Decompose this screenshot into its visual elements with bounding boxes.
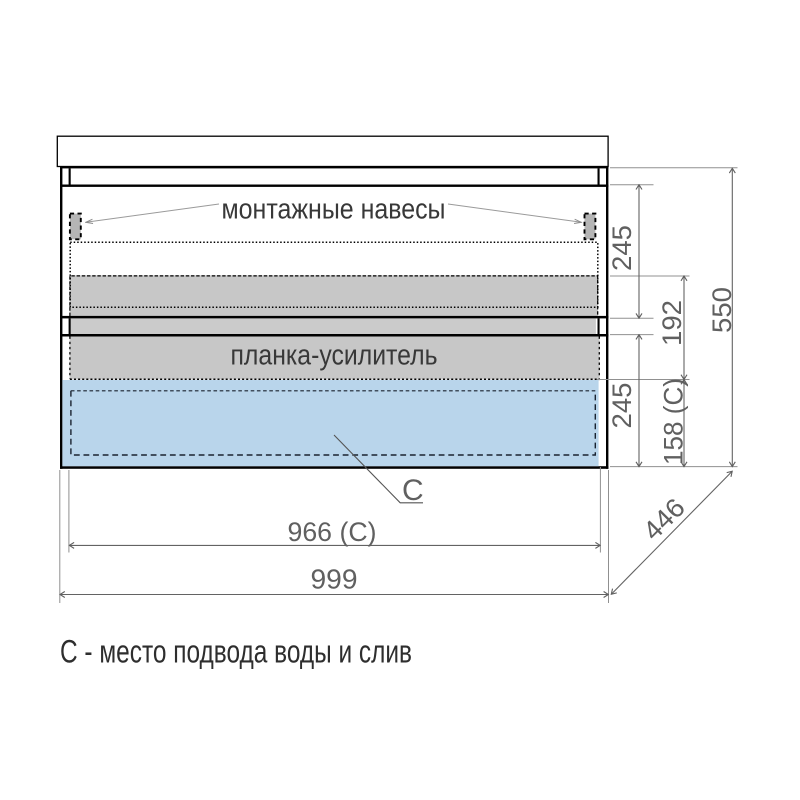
svg-text:999: 999	[311, 564, 358, 595]
svg-text:446: 446	[637, 492, 691, 546]
svg-text:966 (С): 966 (С)	[288, 517, 377, 547]
svg-text:С - место подвода воды и слив: С - место подвода воды и слив	[60, 634, 412, 670]
svg-text:245: 245	[607, 383, 637, 429]
svg-text:монтажные навесы: монтажные навесы	[222, 193, 446, 225]
svg-text:245: 245	[607, 225, 637, 271]
svg-text:С: С	[402, 474, 424, 507]
svg-text:планка-усилитель: планка-усилитель	[231, 340, 438, 372]
svg-text:158 (С): 158 (С)	[659, 378, 689, 465]
svg-text:550: 550	[707, 287, 737, 333]
svg-text:192: 192	[657, 300, 687, 346]
